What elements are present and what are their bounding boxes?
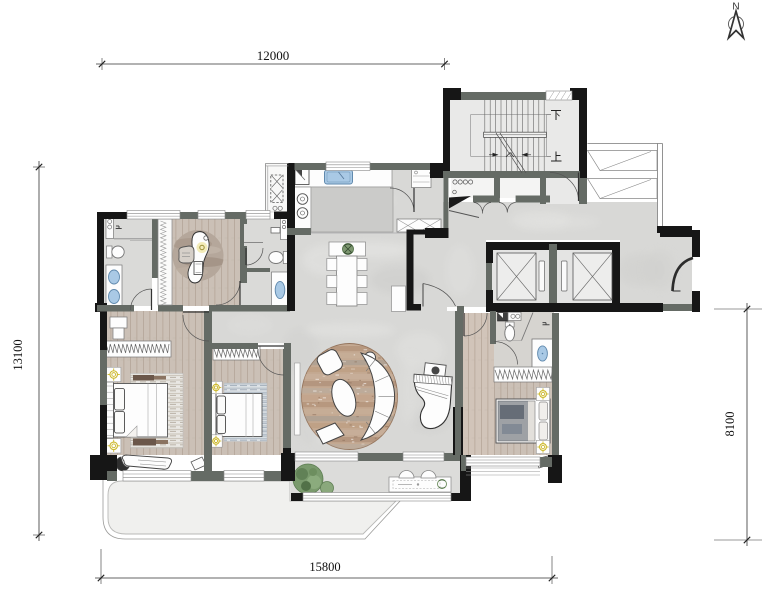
svg-text:13100: 13100 (11, 339, 25, 370)
svg-text:8100: 8100 (723, 412, 737, 437)
svg-text:15800: 15800 (309, 560, 340, 574)
svg-text:12000: 12000 (257, 48, 290, 63)
svg-text:N: N (732, 2, 739, 13)
